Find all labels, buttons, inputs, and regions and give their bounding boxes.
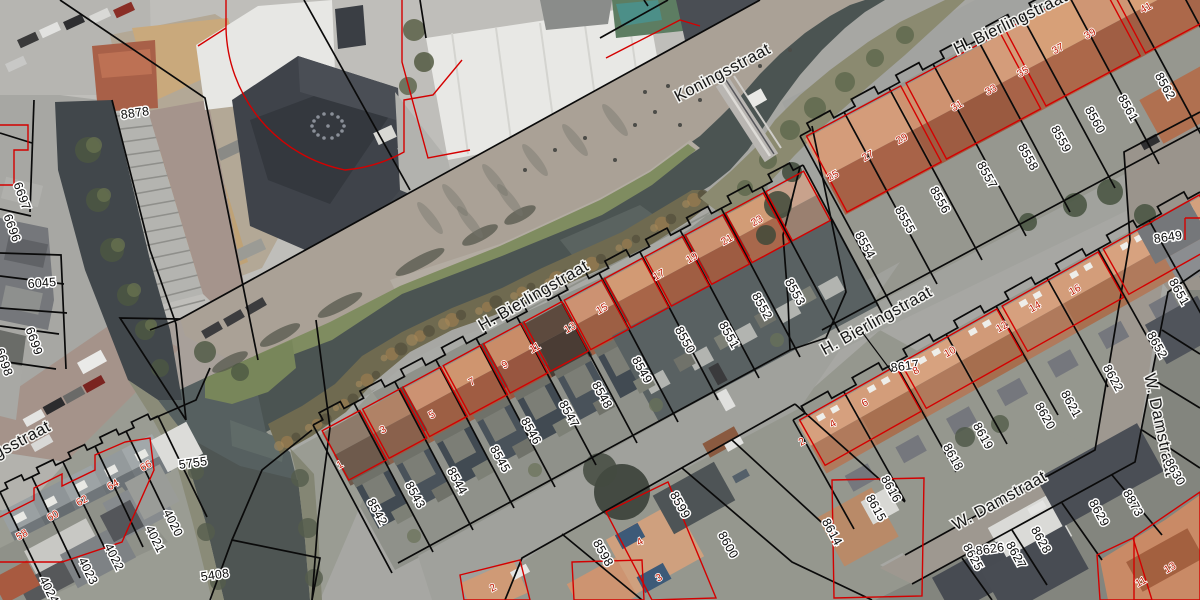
svg-text:6045: 6045 [27,275,57,291]
